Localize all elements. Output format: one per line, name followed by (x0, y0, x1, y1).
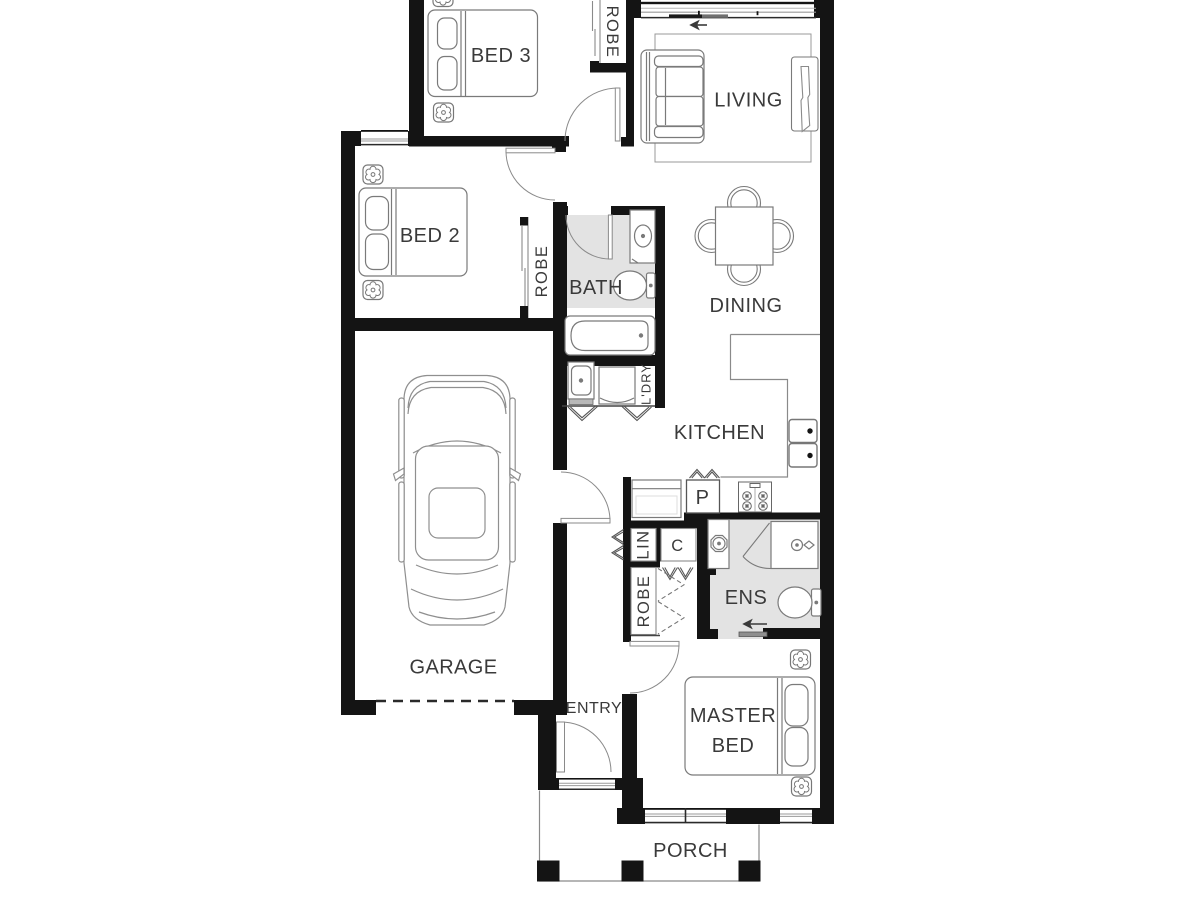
svg-text:LIVING: LIVING (714, 90, 783, 112)
svg-text:BATH: BATH (569, 277, 623, 299)
svg-text:C: C (671, 537, 684, 555)
svg-text:ROBE: ROBE (533, 245, 551, 298)
svg-text:GARAGE: GARAGE (410, 657, 498, 679)
svg-text:ROBE: ROBE (603, 6, 621, 59)
svg-text:LIN: LIN (635, 529, 653, 559)
svg-text:ENS: ENS (725, 587, 768, 609)
svg-text:BED 3: BED 3 (471, 45, 531, 67)
svg-text:BED: BED (712, 735, 755, 757)
svg-text:ENTRY: ENTRY (566, 700, 622, 717)
svg-text:MASTER: MASTER (690, 705, 776, 727)
svg-text:P: P (696, 487, 710, 509)
svg-text:PORCH: PORCH (653, 840, 728, 862)
svg-text:ROBE: ROBE (635, 575, 653, 628)
svg-text:KITCHEN: KITCHEN (674, 422, 765, 444)
svg-text:BED 2: BED 2 (400, 225, 460, 247)
svg-text:DINING: DINING (710, 295, 783, 317)
svg-text:L'DRY: L'DRY (639, 363, 654, 405)
